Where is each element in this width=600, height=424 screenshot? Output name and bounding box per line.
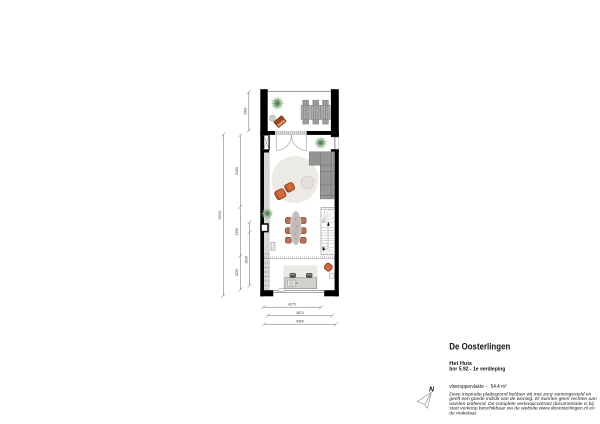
svg-text:10310: 10310: [218, 211, 222, 220]
svg-text:vloeroppervlakte - 54.4 m2: vloeroppervlakte - 54.4 m2: [449, 382, 507, 390]
svg-text:1620: 1620: [235, 269, 239, 277]
svg-text:N: N: [429, 387, 435, 394]
svg-text:2830: 2830: [244, 256, 248, 264]
svg-text:bnr 5.92 - 1e verdieping: bnr 5.92 - 1e verdieping: [449, 366, 505, 372]
svg-text:4870: 4870: [296, 311, 304, 315]
svg-text:3000: 3000: [244, 107, 248, 115]
svg-text:5460: 5460: [296, 320, 304, 324]
svg-text:De Oosterlingen: De Oosterlingen: [449, 341, 510, 352]
svg-text:de makelaar.: de makelaar.: [449, 411, 477, 417]
svg-text:4270: 4270: [288, 303, 296, 307]
svg-text:2300: 2300: [235, 228, 239, 236]
svg-text:5160: 5160: [235, 167, 239, 175]
